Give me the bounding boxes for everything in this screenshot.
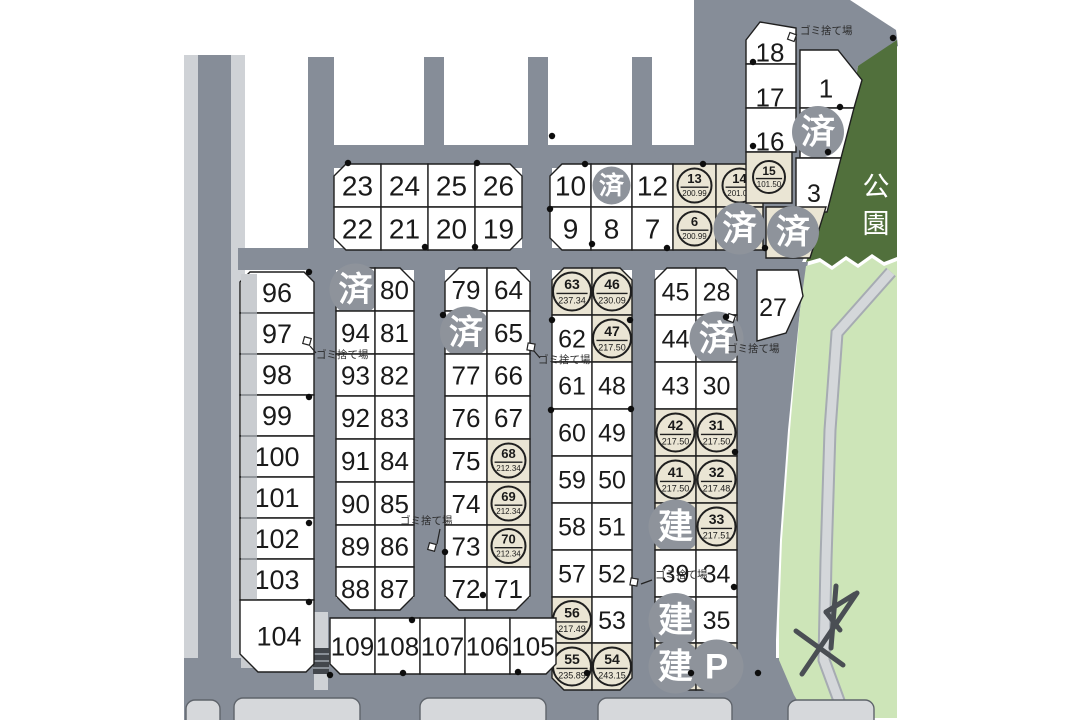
lot-number-label: 103 (254, 565, 299, 595)
lot-number-label: 90 (341, 489, 370, 519)
garbage-marker-icon (527, 343, 535, 351)
lot-47[interactable]: 47217.50 (592, 315, 632, 362)
lot-number-label: 74 (452, 489, 481, 519)
lot-number-label: 105 (511, 631, 554, 661)
survey-point-dot (306, 269, 312, 275)
lot-106[interactable]: 106 (465, 618, 510, 674)
lot-number-label: 35 (703, 607, 731, 635)
lot-number: 55 (564, 651, 580, 667)
neighbor-lot (234, 698, 360, 720)
lot-number-label: 93 (341, 360, 370, 390)
lot-90[interactable]: 90 (336, 482, 375, 525)
lot-number: 13 (687, 171, 701, 186)
lot-number-label: 73 (452, 531, 481, 561)
lot-31[interactable]: 31217.50 (696, 409, 737, 456)
lot-19[interactable]: 19 (475, 207, 522, 250)
lot-number: 47 (604, 323, 620, 339)
survey-point-dot (327, 672, 333, 678)
lot-number-label: 20 (436, 214, 467, 245)
lot-area: 101.50 (757, 180, 782, 189)
lot-number-label: 9 (563, 214, 579, 245)
lot-60[interactable]: 60 (552, 409, 592, 456)
lot-number-label: 45 (662, 279, 690, 307)
lot-area: 230.09 (598, 295, 626, 305)
survey-point-dot (582, 161, 588, 167)
lot-number-label: 83 (380, 403, 409, 433)
garbage-marker-icon (630, 578, 638, 586)
lot-48[interactable]: 48 (592, 362, 632, 409)
lot-area: 243.15 (598, 670, 626, 680)
lot-number: 46 (604, 276, 620, 292)
lot-67[interactable]: 67 (487, 396, 530, 439)
lot-number-label: 43 (662, 373, 690, 401)
lot-7[interactable]: 7 (632, 207, 673, 250)
lot-number-label: 60 (558, 420, 586, 448)
lot-area: 217.50 (703, 436, 731, 446)
lot-57[interactable]: 57 (552, 550, 592, 597)
survey-point-dot (472, 244, 478, 250)
survey-point-dot (306, 520, 312, 526)
lot-number-label: 101 (254, 483, 299, 513)
lot-10[interactable]: 10 (550, 164, 591, 207)
lot-51[interactable]: 51 (592, 503, 632, 550)
survey-point-dot (400, 670, 406, 676)
lot-number-label: 71 (494, 574, 523, 604)
lot-number-label: 94 (341, 318, 370, 348)
lot-109[interactable]: 109 (330, 618, 375, 674)
sold-status-label: 済 (723, 210, 758, 248)
lot-54[interactable]: 54243.15 (592, 643, 632, 690)
survey-point-dot (440, 312, 446, 318)
sold-status-label: 済 (449, 314, 484, 352)
lot-number-label: 66 (494, 360, 523, 390)
lot-number-label: 88 (341, 574, 370, 604)
lot-number-label: 10 (555, 171, 586, 202)
lot-83[interactable]: 83 (375, 396, 414, 439)
sold-status-label: 済 (776, 214, 811, 252)
lot-number-label: 58 (558, 514, 586, 542)
parking-status-label: P (705, 648, 728, 687)
sold-status-label: 済 (599, 171, 625, 200)
lot-number-label: 62 (558, 326, 586, 354)
lot-number-label: 76 (452, 403, 481, 433)
survey-point-dot (515, 669, 521, 675)
lot-built[interactable]: 建 (649, 500, 703, 554)
survey-point-dot (750, 59, 756, 65)
lot-number-label: 107 (421, 631, 464, 661)
survey-point-dot (547, 206, 553, 212)
garbage-label: ゴミ捨て場 (316, 348, 369, 361)
lot-number-label: 44 (662, 326, 690, 354)
lot-area: 217.50 (662, 436, 690, 446)
lot-sold[interactable]: 済 (714, 203, 766, 255)
lot-number-label: 7 (645, 214, 661, 245)
survey-point-dot (723, 314, 729, 320)
sold-status-label: 済 (339, 271, 374, 309)
lot-49[interactable]: 49 (592, 409, 632, 456)
lot-number-label: 61 (558, 373, 586, 401)
lot-number-label: 82 (380, 360, 409, 390)
lot-68[interactable]: 68212.34 (487, 439, 530, 482)
lot-number-label: 50 (598, 467, 626, 495)
lot-number-label: 26 (483, 171, 514, 202)
lot-8[interactable]: 8 (591, 207, 632, 250)
survey-point-dot (755, 670, 761, 676)
lot-number-label: 19 (483, 214, 514, 245)
lot-77[interactable]: 77 (445, 354, 487, 396)
survey-point-dot (306, 599, 312, 605)
survey-point-dot (700, 161, 706, 167)
lot-50[interactable]: 50 (592, 456, 632, 503)
lot-number-label: 77 (452, 360, 481, 390)
lot-number-label: 23 (342, 171, 373, 202)
lot-58[interactable]: 58 (552, 503, 592, 550)
built-status-label: 建 (658, 648, 693, 687)
survey-point-dot (548, 407, 554, 413)
lot-number-label: 109 (331, 631, 374, 661)
lot-number-label: 79 (452, 275, 481, 305)
lot-number-label: 96 (262, 278, 292, 308)
lot-number-label: 72 (452, 574, 481, 604)
lot-number-label: 92 (341, 403, 370, 433)
lot-number-label: 59 (558, 467, 586, 495)
survey-point-dot (731, 584, 737, 590)
lot-84[interactable]: 84 (375, 439, 414, 482)
lot-number-label: 75 (452, 446, 481, 476)
lot-number-label: 80 (380, 275, 409, 305)
lot-number-label: 49 (598, 420, 626, 448)
lot-number-label: 108 (376, 631, 419, 661)
lot-24[interactable]: 24 (381, 164, 428, 207)
lot-59[interactable]: 59 (552, 456, 592, 503)
lot-number: 63 (564, 276, 580, 292)
neighbor-lot (598, 698, 732, 720)
lot-43[interactable]: 43 (655, 362, 696, 409)
lot-area: 200.99 (682, 189, 707, 198)
lot-72[interactable]: 72 (445, 567, 487, 610)
lot-number-label: 3 (807, 180, 821, 208)
lot-65[interactable]: 65 (487, 311, 530, 354)
lot-80[interactable]: 80 (375, 268, 414, 311)
lot-91[interactable]: 91 (336, 439, 375, 482)
survey-point-dot (589, 241, 595, 247)
lot-number-label: 21 (389, 214, 420, 245)
lot-63[interactable]: 63237.34 (552, 268, 592, 315)
lot-number-label: 53 (598, 607, 626, 635)
lot-number: 56 (564, 604, 580, 620)
lot-52[interactable]: 52 (592, 550, 632, 597)
lot-number-label: 18 (756, 37, 785, 67)
lot-number-label: 67 (494, 403, 523, 433)
survey-point-dot (825, 149, 831, 155)
lot-69[interactable]: 69212.34 (487, 482, 530, 525)
lot-number: 31 (709, 417, 725, 433)
garbage-label: ゴミ捨て場 (727, 342, 780, 355)
lot-number-label: 25 (436, 171, 467, 202)
lot-area: 212.34 (496, 507, 521, 516)
lot-35[interactable]: 35 (696, 597, 737, 643)
lot-area: 212.34 (496, 464, 521, 473)
lot-number-label: 89 (341, 531, 370, 561)
lot-21[interactable]: 21 (381, 207, 428, 250)
lot-number-label: 30 (703, 373, 731, 401)
neighbor-lot (788, 700, 874, 720)
lot-number-label: 102 (254, 524, 299, 554)
lot-53[interactable]: 53 (592, 597, 632, 643)
lot-41[interactable]: 41217.50 (655, 456, 696, 503)
survey-point-dot (306, 394, 312, 400)
lot-number-label: 12 (637, 171, 668, 202)
survey-point-dot (409, 617, 415, 623)
lot-number: 54 (604, 651, 620, 667)
lot-area: 237.34 (558, 295, 586, 305)
lot-30[interactable]: 30 (696, 362, 737, 409)
survey-point-dot (627, 317, 633, 323)
lot-area: 212.34 (496, 550, 521, 559)
lot-number-label: 91 (341, 446, 370, 476)
lot-sold[interactable]: 済 (440, 307, 492, 359)
lot-number: 14 (732, 171, 747, 186)
lot-area: 217.48 (703, 483, 731, 493)
lot-70[interactable]: 70212.34 (487, 525, 530, 567)
lot-number-label: 99 (262, 401, 292, 431)
garbage-marker-icon (788, 33, 797, 42)
lot-number-label: 84 (380, 446, 409, 476)
lot-94[interactable]: 94 (336, 311, 375, 354)
lot-area: 217.51 (703, 530, 731, 540)
site-plan-map: 232425262221201910済1213200.9914201.00987… (0, 0, 1080, 720)
garbage-label: ゴミ捨て場 (538, 353, 591, 366)
lot-area: 200.99 (682, 232, 707, 241)
garbage-label: ゴミ捨て場 (800, 24, 853, 37)
lot-area: 217.49 (558, 624, 586, 634)
survey-point-dot (422, 244, 428, 250)
lot-89[interactable]: 89 (336, 525, 375, 567)
lot-66[interactable]: 66 (487, 354, 530, 396)
lot-number-label: 24 (389, 171, 420, 202)
lot-55[interactable]: 55235.89 (552, 643, 592, 690)
lot-area: 235.89 (558, 670, 586, 680)
lot-79[interactable]: 79 (445, 268, 487, 311)
lot-number-label: 27 (759, 294, 787, 322)
lot-75[interactable]: 75 (445, 439, 487, 482)
lot-number-label: 98 (262, 360, 292, 390)
lot-number-label: 106 (466, 631, 509, 661)
lot-32[interactable]: 32217.48 (696, 456, 737, 503)
lot-number-label: 22 (342, 214, 373, 245)
lot-number-label: 8 (604, 214, 620, 245)
survey-point-dot (750, 143, 756, 149)
survey-point-dot (549, 133, 555, 139)
lot-26[interactable]: 26 (475, 164, 522, 207)
survey-point-dot (345, 160, 351, 166)
lot-6[interactable]: 6200.99 (673, 207, 716, 250)
lot-33[interactable]: 33217.51 (696, 503, 737, 550)
survey-point-dot (474, 160, 480, 166)
neighbor-lot (186, 700, 220, 720)
lot-number-label: 81 (380, 318, 409, 348)
lot-22[interactable]: 22 (334, 207, 381, 250)
lot-number-label: 28 (703, 279, 731, 307)
lot-107[interactable]: 107 (420, 618, 465, 674)
lot-number-label: 51 (598, 514, 626, 542)
survey-point-dot (890, 35, 896, 41)
lot-25[interactable]: 25 (428, 164, 475, 207)
built-status-label: 建 (658, 601, 693, 640)
lot-15[interactable]: 15101.50 (746, 152, 792, 203)
survey-point-dot (628, 406, 634, 412)
lot-17[interactable]: 17 (746, 64, 796, 112)
park-label-char: 園 (863, 209, 890, 239)
lot-108[interactable]: 108 (375, 618, 420, 674)
lot-87[interactable]: 87 (375, 567, 414, 610)
lot-76[interactable]: 76 (445, 396, 487, 439)
garbage-label: ゴミ捨て場 (655, 568, 708, 581)
lot-number-label: 86 (380, 531, 409, 561)
garbage-marker-icon (428, 543, 437, 552)
lot-number-label: 87 (380, 574, 409, 604)
survey-point-dot (549, 317, 555, 323)
survey-point-dot (442, 549, 448, 555)
lot-number: 69 (501, 489, 515, 504)
lot-number: 15 (762, 164, 776, 178)
lot-20[interactable]: 20 (428, 207, 475, 250)
lot-number: 68 (501, 446, 515, 461)
lot-number-label: 52 (598, 561, 626, 589)
lot-88[interactable]: 88 (336, 567, 375, 610)
lot-46[interactable]: 46230.09 (592, 268, 632, 315)
lot-105[interactable]: 105 (510, 618, 556, 674)
survey-point-dot (584, 670, 590, 676)
lot-82[interactable]: 82 (375, 354, 414, 396)
lot-61[interactable]: 61 (552, 362, 592, 409)
lot-28[interactable]: 28 (696, 268, 737, 315)
survey-point-dot (732, 449, 738, 455)
lot-number: 70 (501, 532, 515, 547)
garbage-marker-icon (303, 337, 312, 346)
lot-number-label: 104 (256, 622, 301, 652)
lot-number-label: 64 (494, 275, 523, 305)
lot-12[interactable]: 12 (632, 164, 673, 207)
lot-9[interactable]: 9 (550, 207, 591, 250)
lot-number-label: 48 (598, 373, 626, 401)
lot-parking[interactable]: P (690, 640, 744, 694)
lot-number: 41 (668, 464, 684, 480)
lot-45[interactable]: 45 (655, 268, 696, 315)
survey-point-dot (480, 592, 486, 598)
lot-area: 217.50 (662, 483, 690, 493)
lot-number-label: 100 (254, 442, 299, 472)
lot-number-label: 97 (262, 319, 292, 349)
survey-point-dot (688, 670, 694, 676)
lot-number: 32 (709, 464, 725, 480)
lot-92[interactable]: 92 (336, 396, 375, 439)
lot-86[interactable]: 86 (375, 525, 414, 567)
lot-area: 217.50 (598, 342, 626, 352)
lot-81[interactable]: 81 (375, 311, 414, 354)
sold-status-label: 済 (801, 114, 836, 152)
lot-number-label: 1 (819, 73, 833, 103)
park-label-char: 公 (863, 172, 890, 202)
survey-point-dot (762, 245, 768, 251)
built-status-label: 建 (658, 508, 693, 547)
neighbor-lot (420, 698, 546, 720)
lot-number-label: 65 (494, 318, 523, 348)
garbage-label: ゴミ捨て場 (400, 514, 453, 527)
lot-sold[interactable]: 済 (690, 312, 744, 366)
lot-number: 6 (691, 214, 698, 229)
lot-number: 42 (668, 417, 684, 433)
lot-104[interactable]: 104 (240, 600, 314, 672)
lot-number-label: 57 (558, 561, 586, 589)
lot-56[interactable]: 56217.49 (552, 597, 592, 643)
site-plan-figure: 232425262221201910済1213200.9914201.00987… (0, 0, 1080, 720)
lot-sold[interactable]: 済 (330, 264, 382, 316)
lot-73[interactable]: 73 (445, 525, 487, 567)
lot-built[interactable]: 建 (649, 593, 703, 647)
lot-42[interactable]: 42217.50 (655, 409, 696, 456)
survey-point-dot (664, 245, 670, 251)
lot-13[interactable]: 13200.99 (673, 164, 716, 207)
lot-number: 33 (709, 511, 725, 527)
lot-sold[interactable]: 済 (591, 164, 632, 207)
lot-23[interactable]: 23 (334, 164, 381, 207)
survey-point-dot (837, 104, 843, 110)
